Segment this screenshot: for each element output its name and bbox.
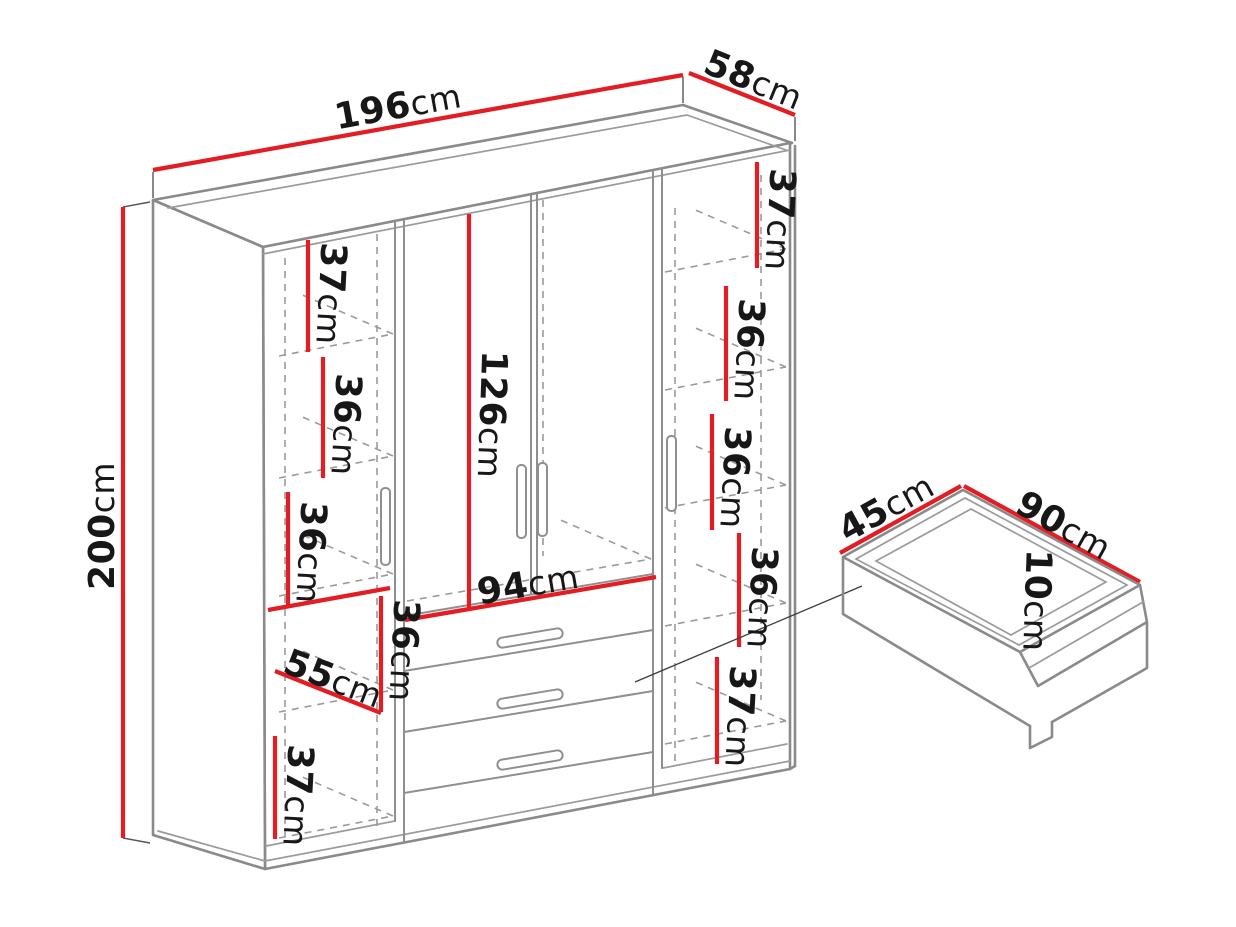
wardrobe-left-side-panel bbox=[153, 200, 265, 869]
drawer-front-foot bbox=[1030, 722, 1052, 748]
dim-label-right-37-bottom: 37cm bbox=[716, 664, 762, 768]
dim-label-right-37-top: 37cm bbox=[756, 167, 802, 271]
dim-label-left-37-top: 37cm bbox=[307, 241, 353, 345]
dim-label-drawer-height: 10cm bbox=[1014, 549, 1059, 653]
center-right-door-handle bbox=[538, 463, 547, 536]
dim-label-hanging-height: 126cm bbox=[469, 350, 514, 479]
dim-label-left-36-b: 36cm bbox=[287, 500, 333, 604]
dim-label-right-36-a: 36cm bbox=[725, 297, 771, 401]
dim-label-left-36-c: 36cm bbox=[380, 598, 426, 702]
left-door-handle bbox=[381, 488, 390, 565]
dim-label-left-37-bottom: 37cm bbox=[274, 743, 320, 847]
wardrobe-body bbox=[153, 105, 795, 869]
center-left-door-handle bbox=[517, 465, 526, 538]
dim-label-height: 200cm bbox=[82, 462, 123, 590]
right-door-handle bbox=[667, 436, 676, 511]
wardrobe-dimension-diagram: 196cm 58cm 200cm 126cm 94cm 55cm 37cm 36… bbox=[0, 0, 1236, 927]
dim-label-depth: 58cm bbox=[698, 42, 808, 118]
dim-label-width: 196cm bbox=[331, 75, 464, 138]
dim-label-right-36-b: 36cm bbox=[711, 425, 757, 529]
dim-label-left-36-a: 36cm bbox=[322, 372, 368, 476]
diagram-canvas: 196cm 58cm 200cm 126cm 94cm 55cm 37cm 36… bbox=[0, 0, 1236, 927]
dim-label-right-36-c: 36cm bbox=[738, 545, 784, 649]
